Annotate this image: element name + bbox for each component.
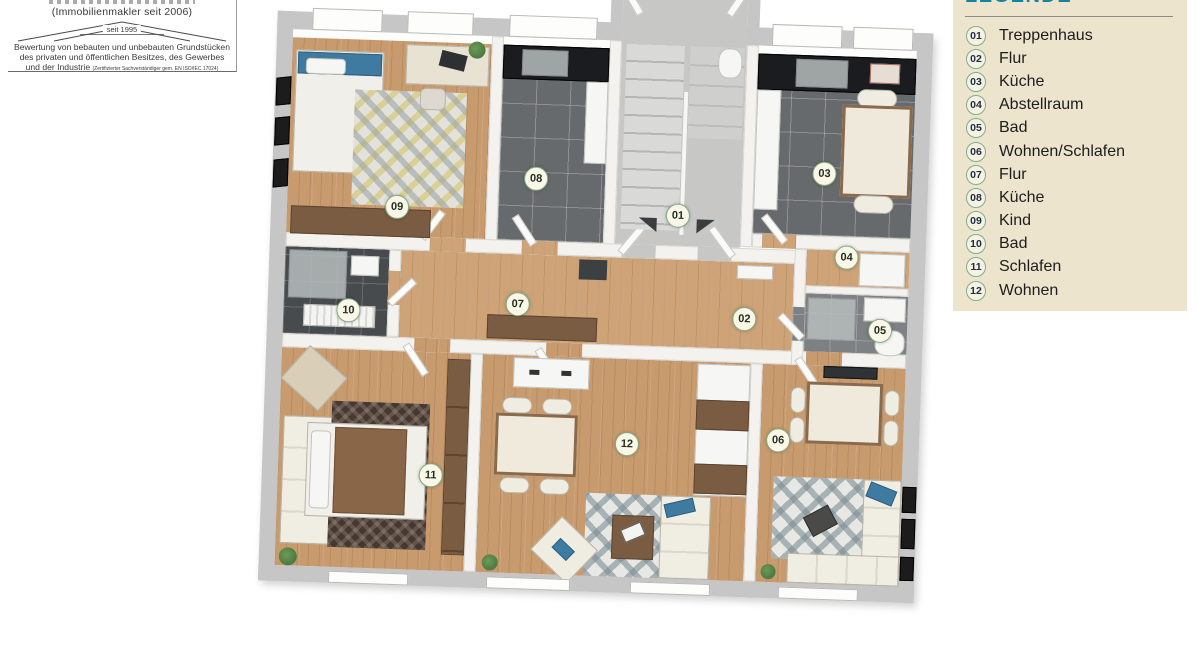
sideboard-06 [823,366,877,380]
stamp-text-line: des privaten und öffentlichen Besitzes, … [8,52,236,62]
shower-10 [288,249,348,299]
legend-label-03: Küche [999,73,1044,91]
legend-label-05: Bad [999,119,1027,137]
desk-chair [419,88,446,111]
door-shadow-right [696,219,714,234]
console-02 [737,265,773,280]
legend-item-06: 06Wohnen/Schlafen [963,140,1187,163]
dining-chair-03-bottom [853,195,894,214]
legend-badge-10: 10 [966,234,986,254]
window-right-2 [900,519,915,549]
cabinet-column-12-counter-b [693,463,747,495]
legend-item-12: 12Wohnen [963,279,1187,302]
window-bottom-3 [630,581,710,596]
legend-item-08: 08Küche [963,186,1187,209]
appliance-04 [859,253,906,288]
legend-badge-05: 05 [966,118,986,138]
bed-11-blanket [332,427,407,515]
window-top-2 [407,11,474,35]
window-top-4 [772,24,843,48]
broker-stamp: (Immobilienmakler seit 2006) seit 1995 B… [8,0,237,72]
window-left-2 [274,116,290,146]
sideboard-12-handle-right [561,371,571,376]
kitchen-cabinet-08 [584,81,609,164]
wc-toilet [718,48,743,79]
legend-item-list: 01Treppenhaus02Flur03Küche04Abstellraum0… [963,24,1187,302]
legend-item-10: 10Bad [963,233,1187,256]
chair-06-left-b [789,417,805,444]
window-right-1 [902,487,917,513]
sofa-06-seat [786,553,899,587]
legend-item-02: 02Flur [963,47,1187,70]
floor-plan: 010203040506070809101112 [236,0,960,660]
legend-badge-09: 09 [966,211,986,231]
legend-label-10: Bad [999,235,1027,253]
legend-label-04: Abstellraum [999,96,1083,114]
sideboard-12 [513,357,590,390]
legend-badge-03: 03 [966,72,986,92]
sideboard-12-handle-left [529,370,539,375]
legend-badge-12: 12 [966,281,986,301]
doorway-09 [430,237,466,252]
legend-badge-06: 06 [966,142,986,162]
legend-item-11: 11Schlafen [963,256,1187,279]
cutting-board [870,63,901,84]
legend-separator [965,16,1173,17]
window-left-3 [273,158,289,188]
doorway-12 [546,342,582,357]
door-shadow-left [638,217,656,232]
sideboard-kind [290,205,431,238]
roof-logo-graphic: seit 1995 [16,19,228,42]
legend-panel: LEGENDE 01Treppenhaus02Flur03Küche04Abst… [953,0,1187,311]
stamp-text-line: Bewertung von bebauten und unbebauten Gr… [8,42,236,52]
window-bottom-1 [328,571,408,586]
window-left-1 [276,76,292,106]
dining-table-03 [840,104,913,198]
legend-badge-11: 11 [966,257,986,277]
chair-12-top-right [542,398,573,415]
cabinet-column-12-counter-a [695,400,749,432]
legend-label-01: Treppenhaus [999,27,1093,45]
doorway-06 [806,351,842,366]
clipped-text-line [49,0,195,4]
legend-item-05: 05Bad [963,117,1187,140]
legend-label-08: Küche [999,189,1044,207]
sideboard-07 [487,314,598,342]
legend-item-09: 09Kind [963,210,1187,233]
stamp-text-line: und der Industrie (Zertifizierter Sachve… [8,62,236,74]
dining-table-06 [805,381,883,446]
window-bottom-4 [778,586,858,601]
legend-item-04: 04Abstellraum [963,94,1187,117]
legend-item-01: 01Treppenhaus [963,24,1187,47]
legend-label-02: Flur [999,50,1027,68]
rug-kind [351,89,467,208]
stair-flight-left [620,44,684,231]
kitchen-sink-03 [795,59,848,89]
bed-11-pillows [308,430,331,509]
stamp-text-industrie: und der Industrie [26,62,91,72]
window-top-5 [853,27,914,51]
legend-item-03: 03Küche [963,70,1187,93]
stamp-certification: (Zertifizierter Sachverständiger gem. EN… [93,66,219,72]
chair-12-bottom-right [539,478,570,495]
doorway-11 [414,338,450,353]
legend-label-06: Wohnen/Schlafen [999,143,1125,161]
chair-12-bottom-left [499,477,530,494]
doormat-07 [579,259,608,280]
chair-06-left-a [790,387,806,414]
window-bottom-2 [486,576,570,591]
legend-label-12: Wohnen [999,282,1058,300]
kitchen-cabinet-03 [753,89,781,210]
window-right-3 [899,557,914,581]
shower-05 [807,297,856,341]
legend-label-09: Kind [999,212,1031,230]
chair-06-right-a [884,390,900,417]
legend-item-07: 07Flur [963,163,1187,186]
sink-10 [351,255,380,276]
legend-badge-04: 04 [966,95,986,115]
kitchen-sink-08 [522,49,569,77]
legend-badge-02: 02 [966,49,986,69]
bed-kind-pillow [306,58,347,75]
roof-label: seit 1995 [103,25,141,34]
window-top-3 [509,15,598,40]
legend-badge-08: 08 [966,188,986,208]
window-top-1 [312,8,383,32]
legend-badge-01: 01 [966,26,986,46]
legend-label-11: Schlafen [999,258,1061,276]
dining-table-12 [494,413,578,478]
stamp-subtitle: (Immobilienmakler seit 2006) [8,6,236,18]
legend-title: LEGENDE [965,0,1187,9]
legend-label-07: Flur [999,166,1027,184]
chair-12-top-left [502,397,533,414]
legend-badge-07: 07 [966,165,986,185]
chair-06-right-b [883,420,899,447]
legend-title-clipped: LEGENDE [965,0,1187,9]
